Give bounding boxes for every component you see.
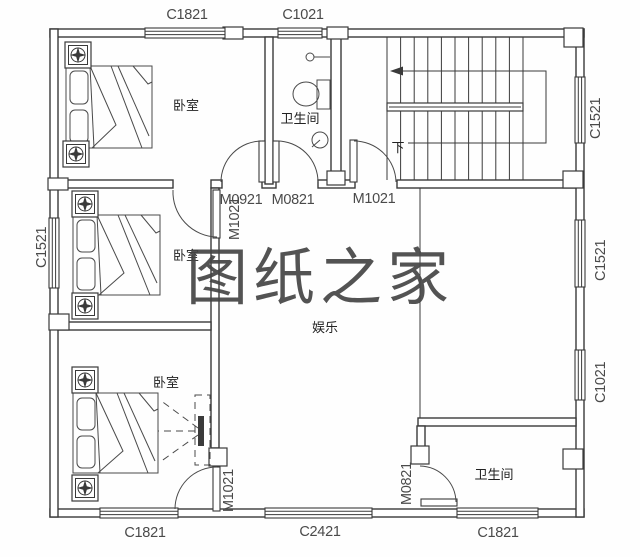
floor-plan-page: C1821 C1021 C1521 C1521 C1021 C1521 C182…	[0, 0, 640, 557]
window-label: C1521	[588, 98, 604, 139]
window-label: C1021	[593, 362, 609, 403]
bed-bedroom1	[66, 66, 152, 148]
stair-handrail	[387, 103, 523, 111]
window-label: C1821	[477, 525, 518, 541]
room-label-bathroom1: 卫生间	[280, 111, 319, 126]
door-label: M1021	[353, 191, 396, 207]
door-label: M1021	[221, 469, 237, 512]
room-label-recreation: 娱乐	[312, 320, 338, 335]
door-m0921	[221, 141, 265, 182]
room-label-bedroom1: 卧室	[173, 98, 199, 113]
stair-arrow	[390, 67, 403, 76]
window-label: C2421	[299, 524, 340, 540]
column-marker-icon	[63, 141, 89, 167]
window-c1521-right-middle	[575, 220, 585, 287]
window-c1021-top	[278, 28, 322, 38]
window-c1821-bottom-left	[100, 508, 178, 518]
room-label-bedroom3: 卧室	[153, 375, 179, 390]
column-marker-icon	[72, 367, 98, 393]
door-label: M0821	[272, 192, 315, 208]
door-m1021-hall	[350, 140, 396, 182]
door-m1021-bedroom2	[173, 190, 220, 238]
bed-bedroom3	[73, 393, 158, 473]
door-labels: M0921 M0821 M1021 M1021 M1021 M0821	[220, 191, 415, 512]
window-c1521-left	[49, 218, 59, 288]
column-marker-icon	[72, 191, 98, 217]
column-markers	[63, 42, 98, 501]
window-label: C1821	[166, 7, 207, 23]
staircase	[387, 37, 546, 180]
door-m1021-bedroom3	[175, 467, 220, 511]
window-c1821-bottom-right	[457, 508, 538, 518]
column-marker-icon	[65, 42, 91, 68]
tv-icon	[158, 395, 210, 465]
door-m0821-bathroom2	[420, 466, 457, 506]
watermark-text: 图纸之家	[186, 245, 454, 313]
window-c2421-bottom	[265, 508, 372, 518]
column-marker-icon	[72, 475, 98, 501]
window-c1021-right-lower	[575, 350, 585, 400]
floor-plan-drawing: C1821 C1021 C1521 C1521 C1021 C1521 C182…	[0, 0, 640, 557]
window-c1821-top	[145, 28, 225, 38]
door-label: M0821	[399, 462, 415, 505]
shower-head-icon	[306, 53, 314, 61]
door-m0821-top	[273, 141, 318, 182]
window-label: C1521	[34, 227, 50, 268]
room-label-bathroom2: 卫生间	[474, 467, 513, 482]
toilet-icon	[293, 82, 319, 106]
bed-bedroom2	[73, 215, 160, 295]
window-label: C1021	[282, 7, 323, 23]
window-label: C1521	[593, 240, 609, 281]
window-c1521-right-upper	[575, 77, 585, 143]
door-label: M1021	[227, 197, 243, 240]
stair-down-label: 下	[391, 140, 404, 155]
window-label: C1821	[124, 525, 165, 541]
column-marker-icon	[72, 293, 98, 319]
bathroom1-fixtures	[293, 53, 330, 148]
